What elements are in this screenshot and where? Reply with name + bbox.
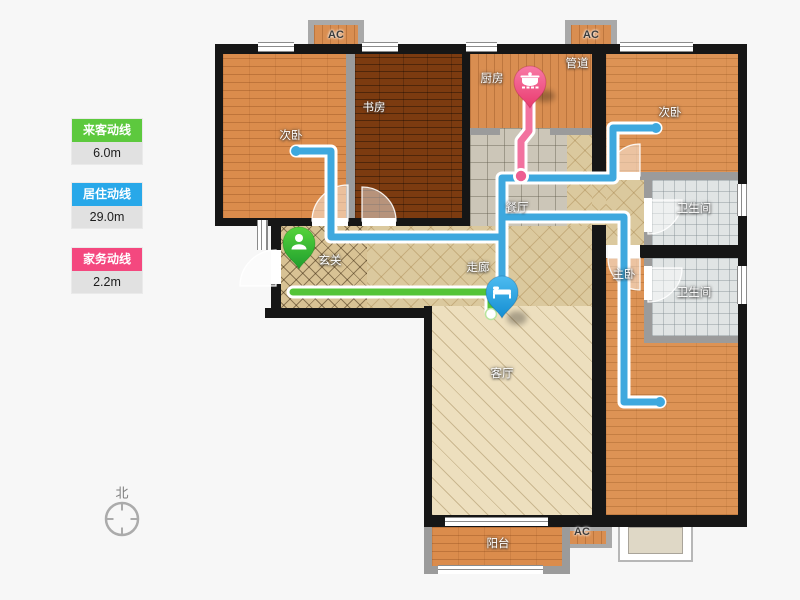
route-housework-endcap	[516, 171, 526, 181]
route-living-endcap	[651, 123, 661, 133]
door-arc	[362, 187, 396, 221]
legend-item-visitor-route: 来客动线 6.0m	[72, 119, 142, 164]
visitor-pin[interactable]	[283, 227, 315, 269]
label-duct: 管道	[566, 55, 589, 71]
label-bathroom-bottom: 卫生间	[677, 284, 712, 300]
legend-living-header[interactable]: 居住动线	[72, 183, 142, 206]
label-bedroom-tl: 次卧	[280, 127, 303, 143]
label-north: 北	[115, 483, 128, 502]
route-living-endcap	[291, 146, 301, 156]
label-study: 书房	[363, 99, 386, 115]
label-kitchen: 厨房	[481, 70, 504, 86]
label-entry: 玄关	[319, 252, 342, 268]
legend-item-housework-route: 家务动线 2.2m	[72, 248, 142, 293]
route-overlay	[0, 0, 800, 600]
label-bathroom-top: 卫生间	[677, 200, 712, 216]
label-ac-bottom: AC	[574, 526, 590, 538]
route-housework	[513, 102, 529, 184]
legend-living-value: 29.0m	[72, 206, 142, 228]
pin-shadow	[507, 311, 527, 325]
label-master: 主卧	[613, 266, 636, 282]
label-ac-top-left: AC	[328, 29, 344, 41]
legend-item-living-route: 居住动线 29.0m	[72, 183, 142, 228]
label-bedroom-tr: 次卧	[659, 104, 682, 120]
label-balcony: 阳台	[487, 535, 510, 551]
housework-pin[interactable]	[514, 66, 546, 108]
legend-visitor-header[interactable]: 来客动线	[72, 119, 142, 142]
compass-icon	[106, 503, 138, 535]
legend-housework-value: 2.2m	[72, 271, 142, 293]
legend-visitor-value: 6.0m	[72, 142, 142, 164]
label-ac-top-right: AC	[583, 29, 599, 41]
door-arc	[240, 250, 276, 286]
floor-plan-canvas: 次卧 书房 厨房 管道 次卧 卫生间 餐厅 走廊 玄关 主卧 卫生间 客厅 阳台…	[0, 0, 800, 600]
route-visitor-endcap	[486, 309, 497, 320]
label-dining: 餐厅	[506, 199, 529, 215]
legend-housework-header[interactable]: 家务动线	[72, 248, 142, 271]
label-corridor: 走廊	[467, 259, 490, 275]
route-living-endcap	[655, 397, 665, 407]
label-living: 客厅	[491, 365, 514, 381]
route-visitor	[293, 292, 497, 320]
